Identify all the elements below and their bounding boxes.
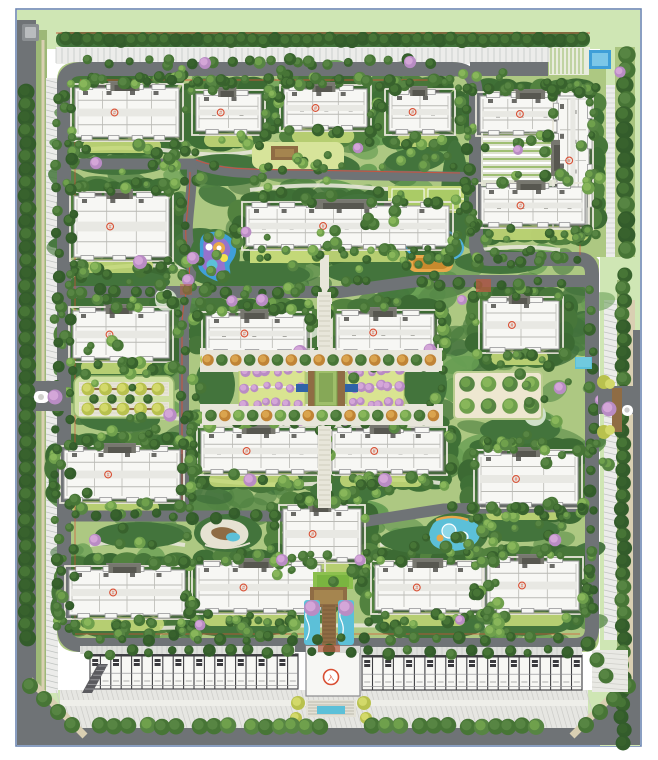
svg-text:#: # xyxy=(322,224,325,230)
svg-text:#: # xyxy=(373,449,376,455)
svg-text:#: # xyxy=(415,586,418,592)
svg-text:#: # xyxy=(112,591,115,597)
svg-text:#: # xyxy=(519,204,522,210)
svg-text:#: # xyxy=(372,331,375,337)
svg-text:#: # xyxy=(515,477,518,483)
svg-text:#: # xyxy=(411,110,414,116)
svg-text:#: # xyxy=(519,112,522,118)
svg-text:#: # xyxy=(314,106,317,112)
svg-text:#: # xyxy=(521,584,524,590)
svg-text:#: # xyxy=(311,532,314,538)
svg-text:#: # xyxy=(242,586,245,592)
svg-text:#: # xyxy=(113,111,116,117)
svg-text:入: 入 xyxy=(328,674,335,682)
svg-text:#: # xyxy=(568,159,571,165)
svg-text:#: # xyxy=(245,449,248,455)
svg-text:#: # xyxy=(109,225,112,231)
svg-text:#: # xyxy=(219,111,222,117)
svg-text:#: # xyxy=(243,332,246,338)
svg-text:#: # xyxy=(511,323,514,329)
svg-text:#: # xyxy=(107,473,110,479)
